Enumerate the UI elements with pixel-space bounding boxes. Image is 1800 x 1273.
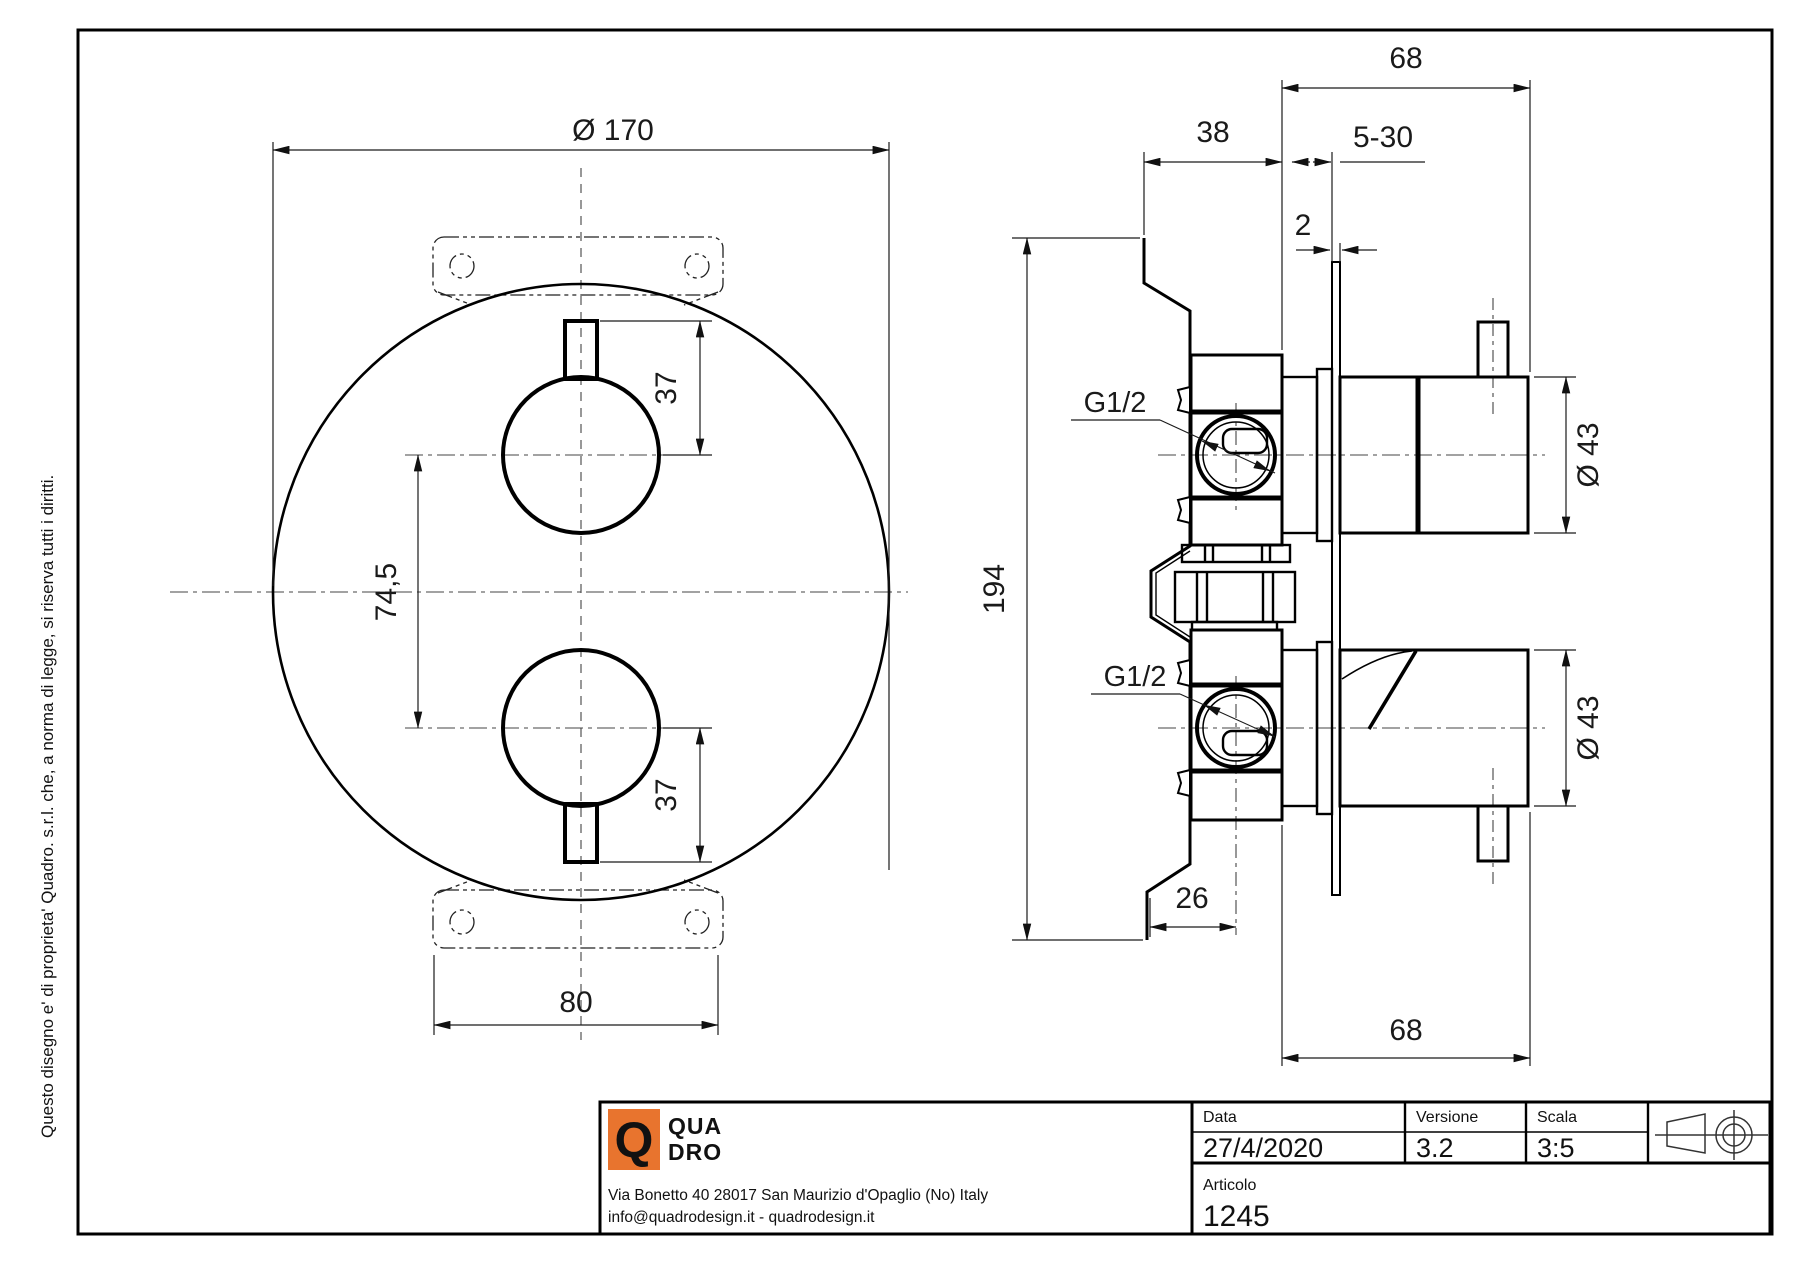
dim-text-68-bottom: 68 bbox=[1389, 1014, 1422, 1047]
top-plate-screw-hole-left bbox=[450, 254, 474, 278]
dim-text-diameter-170: Ø 170 bbox=[572, 114, 654, 147]
address-line1: Via Bonetto 40 28017 San Maurizio d'Opag… bbox=[608, 1187, 988, 1204]
dim-text-38: 38 bbox=[1196, 116, 1229, 149]
mounting-clip bbox=[1178, 497, 1190, 523]
top-mounting-plate bbox=[433, 237, 723, 295]
port-label-bottom: G1/2 bbox=[1104, 661, 1167, 693]
first-angle-projection-icon bbox=[1655, 1110, 1768, 1160]
dim-text-37-top: 37 bbox=[650, 371, 683, 404]
field-label-versione: Versione bbox=[1416, 1109, 1478, 1126]
dim-text-43-bottom: Ø 43 bbox=[1572, 695, 1605, 760]
dim-text-37-bottom: 37 bbox=[650, 778, 683, 811]
field-value-articolo: 1245 bbox=[1203, 1200, 1270, 1233]
bottom-plate-screw-hole-right bbox=[685, 910, 709, 934]
logo-text-line1: QUA bbox=[668, 1113, 722, 1139]
quadro-logo: Q QUA DRO bbox=[608, 1109, 722, 1170]
field-value-data: 27/4/2020 bbox=[1203, 1133, 1323, 1163]
field-label-data: Data bbox=[1203, 1109, 1237, 1126]
ownership-note: Questo disegno e' di proprieta' Quadro. … bbox=[38, 475, 57, 1138]
logo-q-icon: Q bbox=[615, 1112, 654, 1168]
bottom-plate-screw-hole-left bbox=[450, 910, 474, 934]
mounting-clip bbox=[1178, 387, 1190, 413]
dim-text-43-top: Ø 43 bbox=[1572, 422, 1605, 487]
page-border bbox=[78, 30, 1772, 1234]
side-view bbox=[1144, 238, 1545, 940]
drawing-sheet: Questo disegno e' di proprieta' Quadro. … bbox=[0, 0, 1800, 1273]
top-plate-screw-hole-right bbox=[685, 254, 709, 278]
port-label-top: G1/2 bbox=[1084, 387, 1147, 419]
field-label-articolo: Articolo bbox=[1203, 1177, 1256, 1194]
center-union bbox=[1175, 545, 1295, 630]
lower-handle-lever-edge bbox=[1369, 651, 1416, 729]
dim-text-80: 80 bbox=[559, 986, 592, 1019]
dim-text-68-top: 68 bbox=[1389, 42, 1422, 75]
field-value-versione: 3.2 bbox=[1416, 1133, 1454, 1163]
dim-text-26: 26 bbox=[1175, 882, 1208, 915]
wall-bracket-profile bbox=[1144, 238, 1190, 940]
technical-drawing: Questo disegno e' di proprieta' Quadro. … bbox=[0, 0, 1800, 1273]
field-value-scala: 3:5 bbox=[1537, 1133, 1575, 1163]
lower-port-cartridge bbox=[1223, 731, 1267, 755]
front-view bbox=[170, 168, 908, 1040]
dim-text-5-30: 5-30 bbox=[1353, 121, 1413, 154]
logo-text-line2: DRO bbox=[668, 1139, 722, 1165]
field-label-scala: Scala bbox=[1537, 1109, 1577, 1126]
address-line2: info@quadrodesign.it - quadrodesign.it bbox=[608, 1209, 875, 1226]
dim-text-2: 2 bbox=[1295, 209, 1312, 242]
mounting-clip bbox=[1178, 770, 1190, 796]
mounting-clip bbox=[1178, 660, 1190, 686]
dim-text-194: 194 bbox=[978, 564, 1011, 614]
upper-handle bbox=[1340, 377, 1528, 533]
dim-text-74-5: 74,5 bbox=[370, 563, 403, 621]
